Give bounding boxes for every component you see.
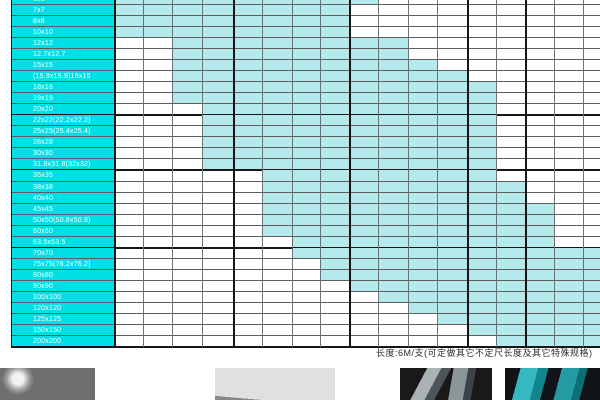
grid-vline xyxy=(172,0,173,347)
grid-vline xyxy=(320,0,321,347)
grid-vline xyxy=(496,0,497,347)
grid-vline xyxy=(378,0,379,347)
catalog-page: 6x67x78x810x1012x1212.7x12.715x15(15.9x1… xyxy=(0,0,600,400)
grid-vline xyxy=(349,0,351,347)
grid-vline xyxy=(467,0,469,347)
grid-vline xyxy=(554,0,555,347)
grid-vline xyxy=(408,0,409,347)
grid-vline xyxy=(202,0,203,347)
size-column-left-border xyxy=(11,0,12,347)
grid-vline xyxy=(233,0,235,347)
fanned-flat-bars-photo xyxy=(215,368,335,400)
grid-vline xyxy=(292,0,293,347)
grid-vline xyxy=(437,0,438,347)
angle-steel-profiles-photo xyxy=(400,368,492,400)
grid-vline xyxy=(114,0,116,347)
grid-vline xyxy=(583,0,584,347)
grid-vline xyxy=(525,0,527,347)
round-steel-bars-photo xyxy=(0,368,95,400)
length-note: 长度:6M/支(可定做其它不定尺长度及其它特殊规格) xyxy=(376,346,593,359)
grid-vline xyxy=(143,0,144,347)
grid-vline xyxy=(262,0,263,347)
spec-grid: 6x67x78x810x1012x1212.7x12.715x15(15.9x1… xyxy=(0,0,600,347)
teal-square-tubes-photo xyxy=(505,368,600,400)
